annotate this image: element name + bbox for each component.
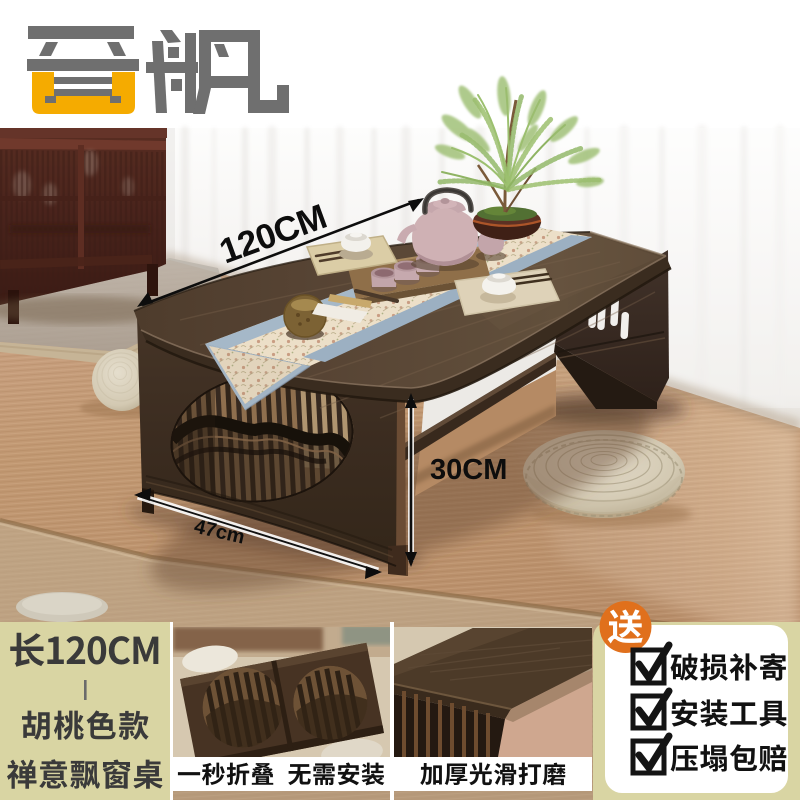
svg-text:30CM: 30CM [430,454,507,486]
